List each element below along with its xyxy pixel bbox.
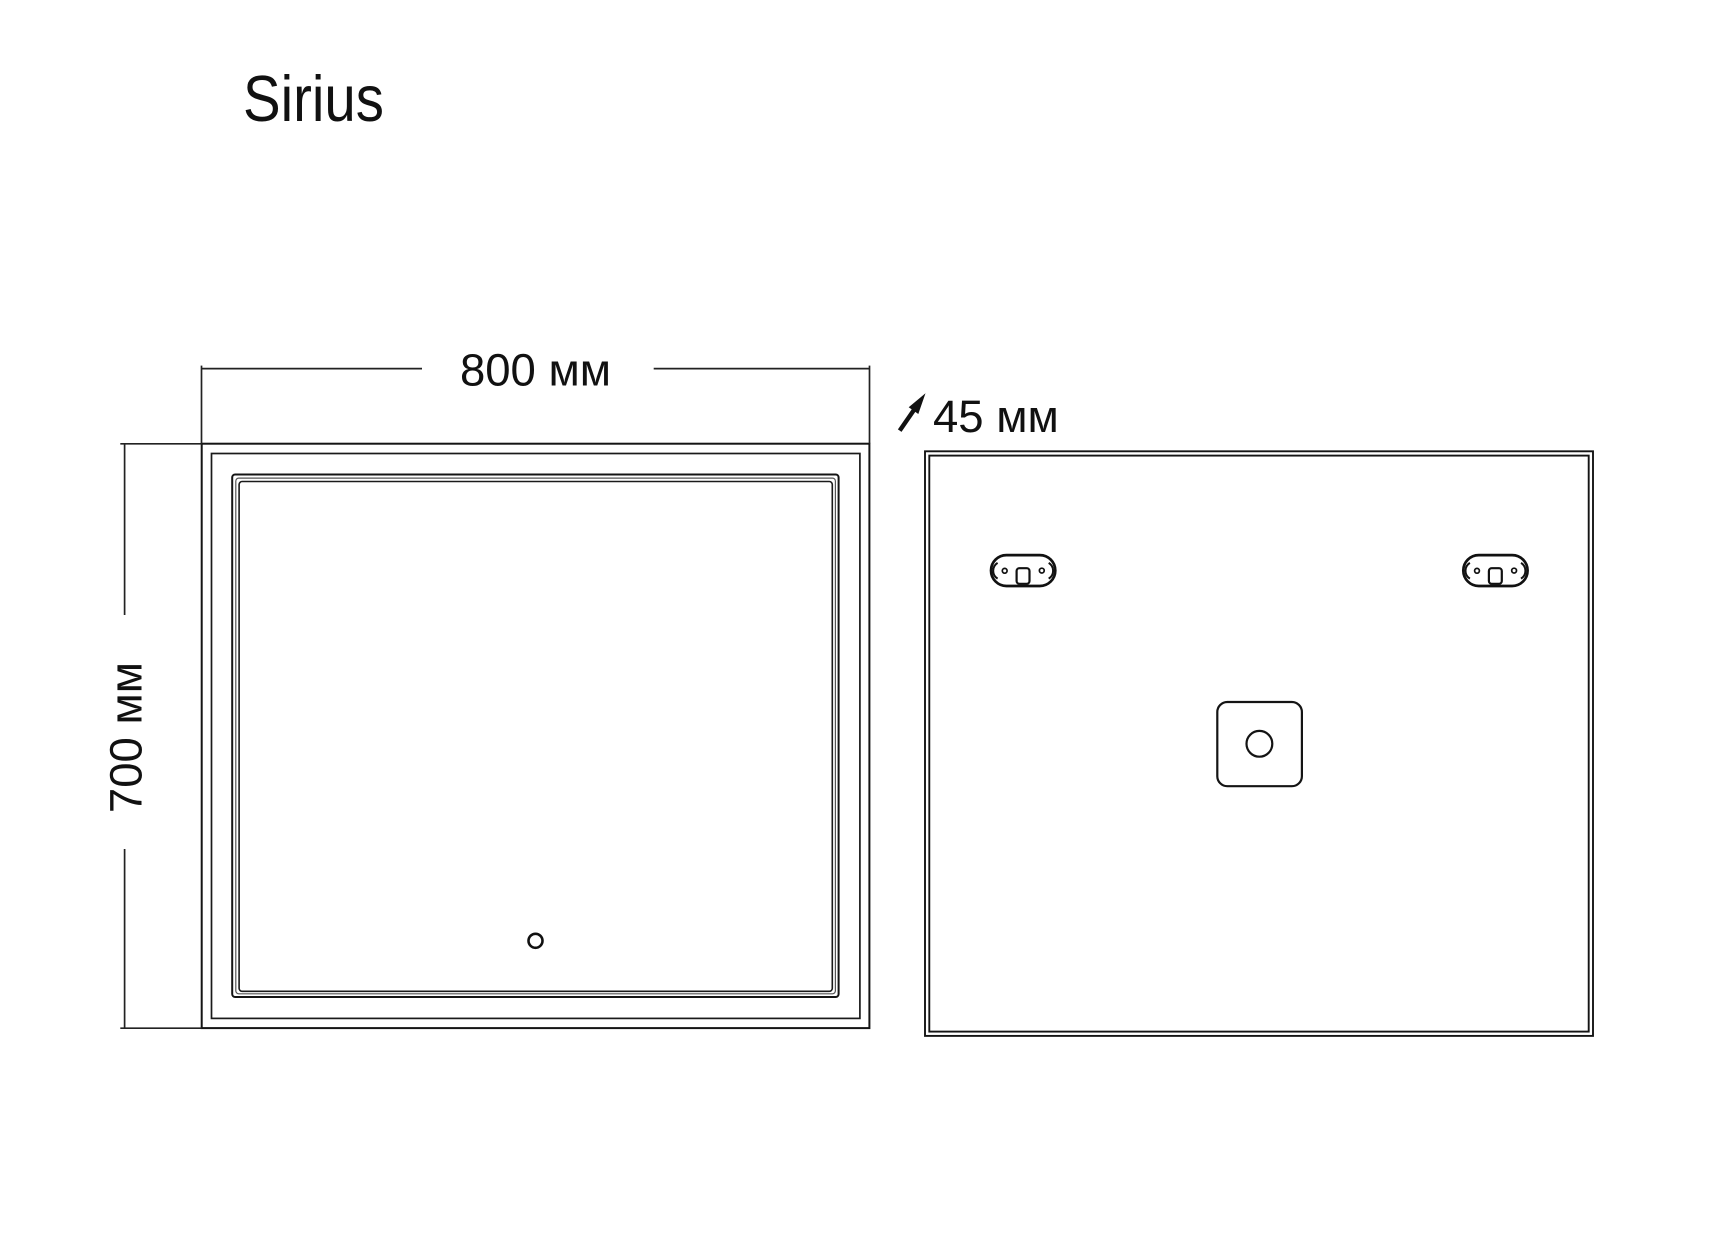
- svg-text:800 мм: 800 мм: [460, 345, 611, 396]
- svg-text:Sirius: Sirius: [243, 62, 384, 135]
- svg-text:700 мм: 700 мм: [101, 662, 152, 813]
- svg-text:45 мм: 45 мм: [933, 391, 1059, 442]
